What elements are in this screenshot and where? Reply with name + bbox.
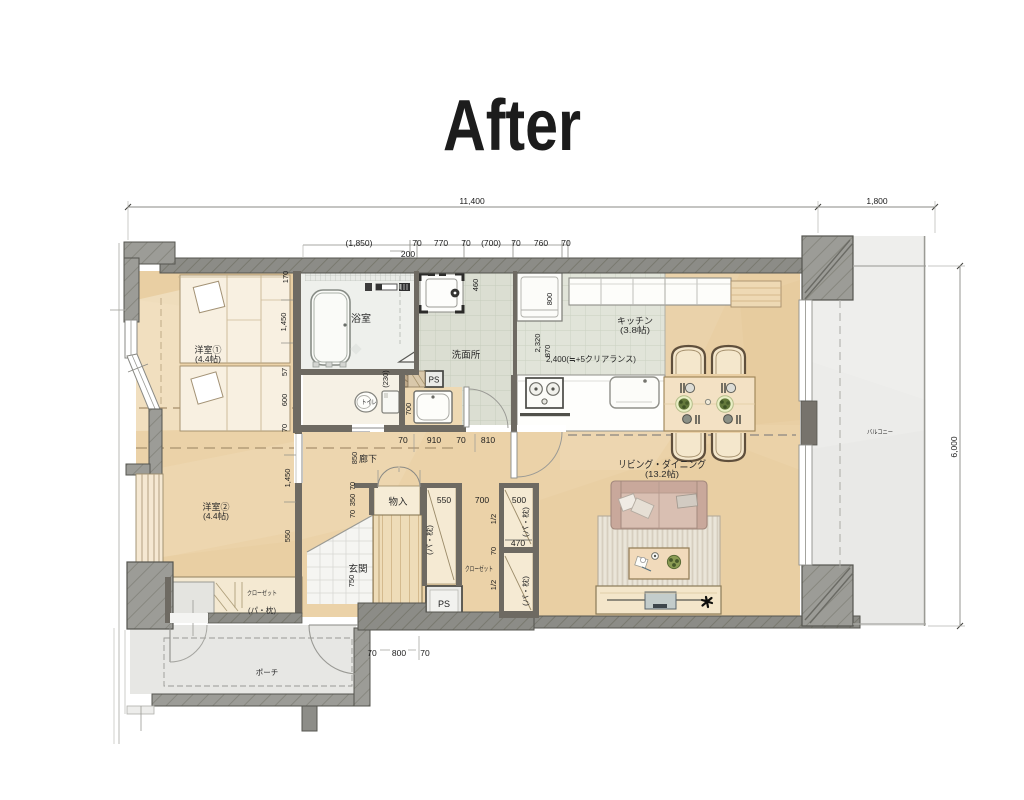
svg-text:600: 600 <box>280 394 289 407</box>
svg-text:6,000: 6,000 <box>949 436 959 458</box>
svg-text:(13.2帖): (13.2帖) <box>645 469 679 479</box>
svg-text:浴室: 浴室 <box>351 312 371 325</box>
svg-text:550: 550 <box>283 530 292 543</box>
svg-text:170: 170 <box>281 271 290 284</box>
svg-text:70: 70 <box>561 238 571 248</box>
svg-text:洗面所: 洗面所 <box>452 349 481 361</box>
svg-text:70: 70 <box>461 238 471 248</box>
svg-text:70: 70 <box>348 510 357 518</box>
svg-text:750: 750 <box>347 575 356 588</box>
svg-text:70: 70 <box>398 435 408 445</box>
svg-text:(700): (700) <box>481 238 501 248</box>
svg-text:760: 760 <box>534 238 548 248</box>
svg-text:460: 460 <box>471 279 480 292</box>
svg-text:810: 810 <box>481 435 495 445</box>
svg-text:1,800: 1,800 <box>866 196 888 206</box>
svg-text:70: 70 <box>367 648 377 658</box>
svg-text:70: 70 <box>280 424 289 432</box>
svg-text:11,400: 11,400 <box>459 196 485 206</box>
svg-text:廊下: 廊下 <box>359 453 377 464</box>
svg-text:玄関: 玄関 <box>348 563 367 575</box>
svg-text:500: 500 <box>512 495 526 505</box>
svg-text:70: 70 <box>489 547 498 555</box>
svg-text:クローゼット: クローゼット <box>247 588 277 597</box>
svg-text:2,400(≒+5クリアランス): 2,400(≒+5クリアランス) <box>546 354 636 364</box>
svg-text:After: After <box>443 86 581 166</box>
svg-text:770: 770 <box>434 238 448 248</box>
svg-text:550: 550 <box>437 495 451 505</box>
svg-text:バルコニー: バルコニー <box>867 429 893 436</box>
svg-text:800: 800 <box>545 293 554 306</box>
svg-text:(パ・枕): (パ・枕) <box>521 507 530 537</box>
svg-text:1,450: 1,450 <box>283 469 292 488</box>
svg-text:350: 350 <box>348 494 357 507</box>
svg-text:1/2: 1/2 <box>489 514 498 524</box>
svg-text:70: 70 <box>412 238 422 248</box>
svg-text:PS: PS <box>429 376 440 385</box>
svg-text:910: 910 <box>427 435 441 445</box>
svg-text:800: 800 <box>392 648 406 658</box>
svg-text:700: 700 <box>475 495 489 505</box>
svg-text:PS: PS <box>438 599 450 609</box>
svg-text:57: 57 <box>280 368 289 376</box>
svg-text:2,320: 2,320 <box>533 334 542 353</box>
svg-text:1/2: 1/2 <box>489 580 498 590</box>
svg-text:(パ・枕): (パ・枕) <box>521 576 530 606</box>
svg-text:(パ・枕): (パ・枕) <box>248 605 277 615</box>
svg-text:ポーチ: ポーチ <box>256 668 279 677</box>
svg-text:850: 850 <box>350 452 359 465</box>
svg-text:700: 700 <box>404 403 413 416</box>
svg-text:70: 70 <box>420 648 430 658</box>
svg-text:(4.4帖): (4.4帖) <box>195 354 221 364</box>
svg-text:(230): (230) <box>381 370 390 388</box>
svg-text:(1,850): (1,850) <box>346 238 373 248</box>
svg-text:200: 200 <box>401 249 415 259</box>
svg-text:(パ・枕): (パ・枕) <box>425 525 434 555</box>
svg-text:トイレ: トイレ <box>362 399 377 406</box>
svg-text:470: 470 <box>511 538 525 548</box>
svg-text:クローゼット: クローゼット <box>465 564 493 573</box>
svg-text:(3.8帖): (3.8帖) <box>620 325 650 335</box>
svg-text:(4.4帖): (4.4帖) <box>203 511 229 521</box>
svg-text:70: 70 <box>511 238 521 248</box>
svg-text:70: 70 <box>456 435 466 445</box>
svg-text:1,450: 1,450 <box>279 313 288 332</box>
svg-text:870: 870 <box>543 345 552 358</box>
svg-text:70: 70 <box>348 482 357 490</box>
svg-text:物入: 物入 <box>388 496 408 508</box>
